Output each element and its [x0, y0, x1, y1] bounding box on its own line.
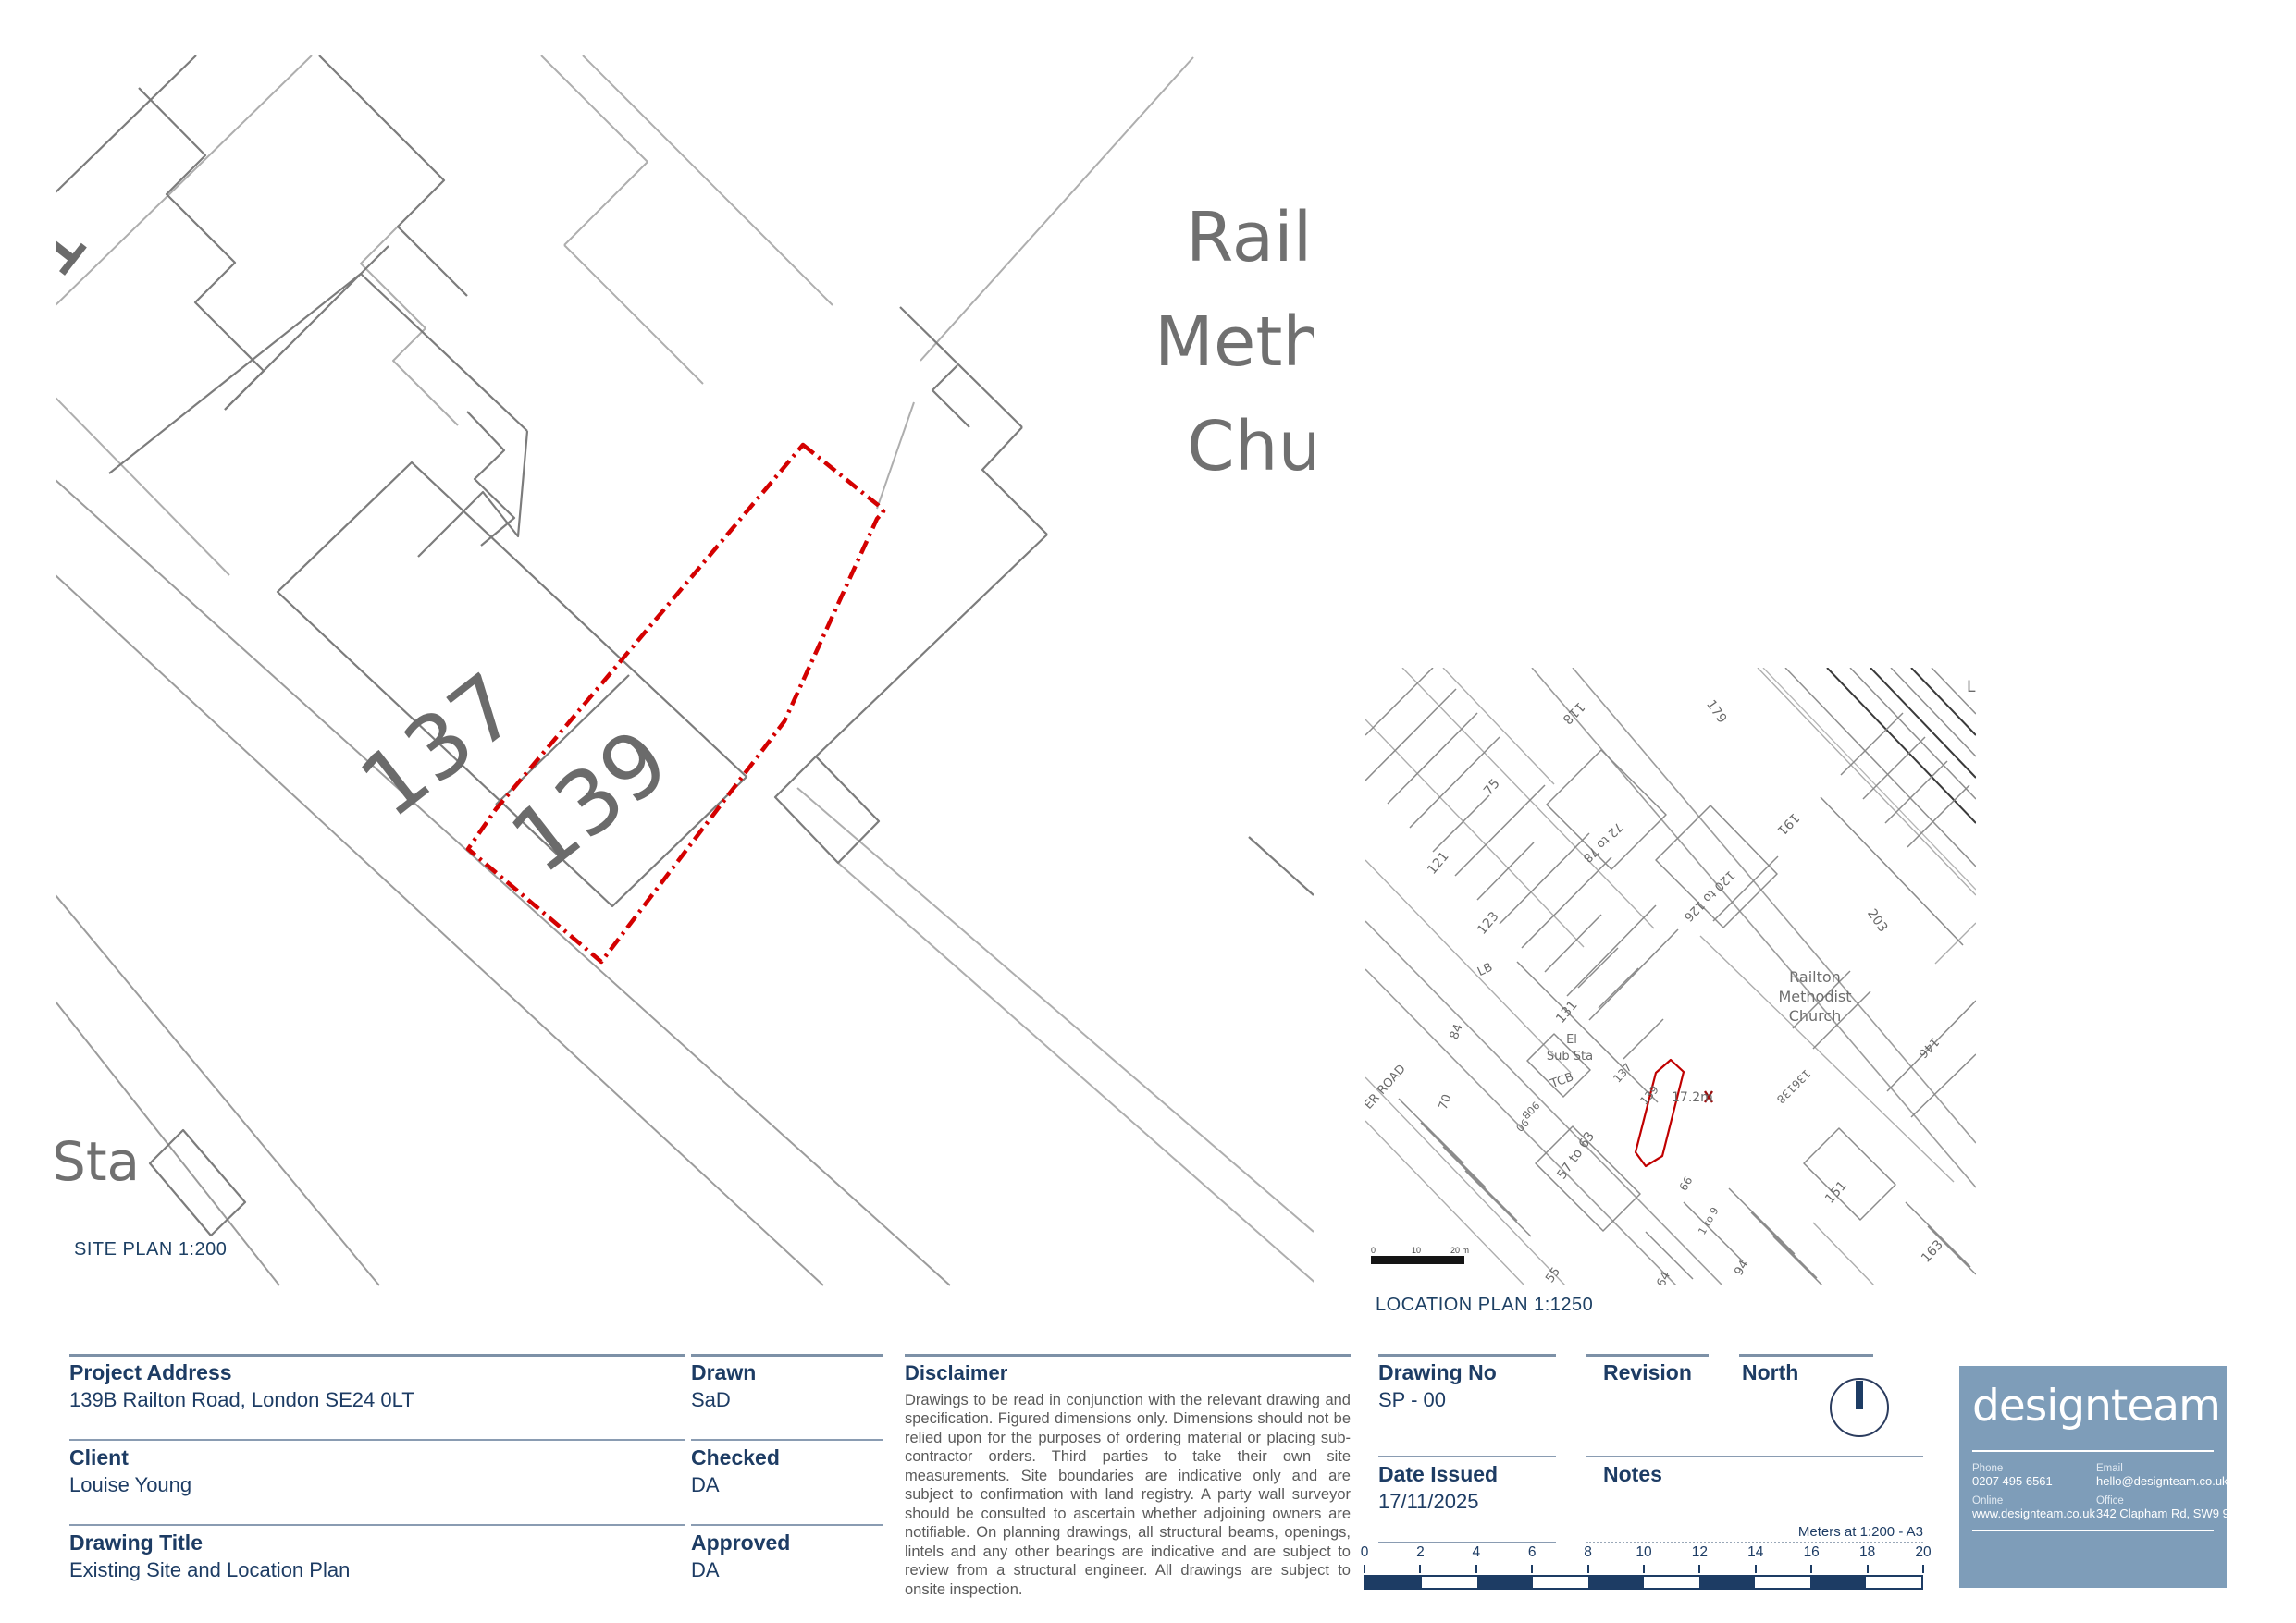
lp-label: 139 — [1637, 1083, 1661, 1107]
lp-label: 203 — [1864, 906, 1890, 935]
lp-label: 72 to 78 — [1580, 819, 1625, 865]
logo-divider-bottom — [1972, 1530, 2214, 1531]
lp-church-label-3: Church — [1789, 1007, 1842, 1025]
lp-label: El — [1566, 1033, 1577, 1047]
scale-num: 4 — [1472, 1544, 1480, 1561]
drawing-title-value: Existing Site and Location Plan — [69, 1558, 685, 1581]
scale-num: 0 — [1361, 1544, 1369, 1561]
scale-bar: Meters at 1:200 - A3 0 2 4 6 8 10 12 14 … — [1364, 1524, 1923, 1598]
site-label-church-2: Methodist — [1154, 302, 1332, 382]
lp-label: 55 — [1543, 1265, 1563, 1285]
logo-online: Online www.designteam.co.uk — [1972, 1495, 2087, 1520]
mini-scale-0: 0 — [1371, 1246, 1376, 1255]
location-parcels-light — [1365, 668, 1976, 1285]
client-value: Louise Young — [69, 1473, 685, 1496]
office-label: Office — [2096, 1495, 2243, 1506]
email-label: Email — [2096, 1463, 2243, 1474]
site-map-labels: 131 137 139 Railton Methodist Church Sta — [0, 192, 1332, 1193]
lp-church-label-2: Methodist — [1778, 988, 1851, 1005]
north-compass-needle — [1856, 1381, 1863, 1409]
location-plan-caption: LOCATION PLAN 1:1250 — [1376, 1295, 1593, 1316]
drawing-no-value: SP - 00 — [1378, 1388, 1556, 1411]
scale-num: 14 — [1747, 1544, 1763, 1561]
site-label-church-3: Church — [1187, 407, 1332, 486]
location-plan-map: 118 179 75 121 72 to 78 120 to 126 191 2… — [1365, 668, 1976, 1285]
disclaimer-label: Disclaimer — [905, 1361, 1351, 1385]
mini-scalebar-bar — [1371, 1256, 1464, 1264]
drawn-label: Drawn — [691, 1361, 883, 1384]
email-value[interactable]: hello@designteam.co.uk — [2096, 1474, 2243, 1488]
location-site-boundary-red — [1636, 1060, 1684, 1166]
checked-label: Checked — [691, 1446, 883, 1469]
site-label-131-partial: 131 — [0, 192, 107, 381]
date-issued-label: Date Issued — [1378, 1463, 1556, 1486]
scale-num: 6 — [1528, 1544, 1537, 1561]
logo-office: Office 342 Clapham Rd, SW9 9AJ — [2096, 1495, 2243, 1520]
date-issued-section: Date Issued 17/11/2025 — [1378, 1463, 1556, 1514]
lp-label: 84 — [1448, 1022, 1466, 1041]
site-plan-map: 131 137 139 Railton Methodist Church Sta — [0, 0, 1332, 1295]
checked-value: DA — [691, 1473, 883, 1496]
scale-num: 20 — [1915, 1544, 1931, 1561]
online-label: Online — [1972, 1495, 2087, 1506]
website-value[interactable]: www.designteam.co.uk — [1972, 1506, 2087, 1520]
client-label: Client — [69, 1446, 685, 1469]
drawing-title-section: Drawing Title Existing Site and Location… — [69, 1531, 685, 1582]
notes-section: Notes — [1603, 1463, 1788, 1490]
disclaimer-section: Disclaimer Drawings to be read in conjun… — [905, 1361, 1351, 1599]
location-plan-mini-scalebar: 0 10 20 m — [1371, 1248, 1473, 1266]
phone-label: Phone — [1972, 1463, 2087, 1474]
drawing-sheet: 131 137 139 Railton Methodist Church Sta… — [0, 0, 2296, 1623]
phone-value: 0207 495 6561 — [1972, 1474, 2087, 1488]
office-address-value: 342 Clapham Rd, SW9 9AJ — [2096, 1506, 2243, 1520]
lp-label: ER ROAD — [1365, 1063, 1409, 1113]
approved-section: Approved DA — [691, 1531, 883, 1582]
lp-label: 94 — [1732, 1258, 1751, 1278]
north-section: North — [1742, 1361, 1798, 1384]
mini-scale-10: 10 — [1412, 1246, 1421, 1255]
site-boundary-red — [468, 445, 883, 962]
location-roads — [1365, 668, 1976, 1285]
site-buildings-light — [56, 55, 1318, 1285]
drawing-title-label: Drawing Title — [69, 1531, 685, 1555]
north-compass-icon — [1830, 1378, 1889, 1437]
location-map-labels: 118 179 75 121 72 to 78 120 to 126 191 2… — [1365, 678, 1976, 1285]
lp-label: 123 — [1475, 909, 1501, 938]
project-address-label: Project Address — [69, 1361, 685, 1384]
notes-label: Notes — [1603, 1463, 1788, 1486]
lp-label: 179 — [1703, 697, 1729, 726]
lp-label: 121 — [1425, 849, 1451, 878]
drawing-no-section: Drawing No SP - 00 — [1378, 1361, 1556, 1412]
lp-label: 66 — [1677, 1174, 1696, 1193]
revision-label: Revision — [1603, 1361, 1742, 1384]
site-label-substation-partial: Sta — [52, 1130, 140, 1193]
approved-label: Approved — [691, 1531, 883, 1555]
site-roads — [56, 480, 950, 1285]
lp-label: 136138 — [1774, 1067, 1813, 1106]
lp-church-label-1: Railton — [1789, 968, 1841, 986]
site-plan-caption: SITE PLAN 1:200 — [74, 1239, 227, 1260]
scale-num: 16 — [1804, 1544, 1820, 1561]
lp-label: 118 — [1560, 699, 1587, 727]
railway-lines — [1763, 668, 1976, 890]
scale-num: 8 — [1584, 1544, 1592, 1561]
scale-num: 12 — [1692, 1544, 1708, 1561]
scale-num: 2 — [1416, 1544, 1425, 1561]
site-buildings-dark — [56, 55, 1314, 1236]
lp-label: L — [1967, 678, 1976, 696]
project-address-section: Project Address 139B Railton Road, Londo… — [69, 1361, 685, 1412]
location-buildings — [1365, 668, 1976, 1285]
lp-label: 146 — [1915, 1034, 1941, 1060]
lp-label: 191 — [1774, 810, 1802, 838]
drawn-section: Drawn SaD — [691, 1361, 883, 1412]
scale-bar-caption: Meters at 1:200 - A3 — [1798, 1524, 1923, 1540]
logo-email: Email hello@designteam.co.uk — [2096, 1463, 2243, 1488]
project-address-value: 139B Railton Road, London SE24 0LT — [69, 1388, 685, 1411]
scale-bar-segments — [1364, 1575, 1923, 1590]
north-label: North — [1742, 1361, 1798, 1384]
drawn-value: SaD — [691, 1388, 883, 1411]
client-section: Client Louise Young — [69, 1446, 685, 1497]
scale-num: 18 — [1859, 1544, 1875, 1561]
lp-label: Sub Sta — [1547, 1050, 1593, 1064]
approved-value: DA — [691, 1558, 883, 1581]
date-issued-value: 17/11/2025 — [1378, 1490, 1556, 1513]
revision-section: Revision — [1603, 1361, 1742, 1388]
lp-label: 163 — [1919, 1237, 1946, 1266]
disclaimer-text: Drawings to be read in conjunction with … — [905, 1391, 1351, 1599]
site-label-church-1: Railton — [1186, 198, 1332, 277]
lp-label: 70 — [1437, 1092, 1455, 1112]
lp-label: 75 — [1481, 776, 1503, 798]
drawing-no-label: Drawing No — [1378, 1361, 1556, 1384]
checked-section: Checked DA — [691, 1446, 883, 1497]
brand-wordmark: designteam — [1959, 1366, 2227, 1428]
designteam-logo-block: designteam Phone 0207 495 6561 Email hel… — [1959, 1366, 2227, 1588]
scale-num: 10 — [1636, 1544, 1651, 1561]
lp-label: 1 to 9 — [1696, 1205, 1721, 1236]
lp-label: 137 — [1611, 1061, 1635, 1085]
logo-phone: Phone 0207 495 6561 — [1972, 1463, 2087, 1488]
mini-scale-20: 20 m — [1450, 1246, 1469, 1255]
lp-label: 151 — [1822, 1178, 1850, 1207]
spot-height-label: 17.2m — [1672, 1090, 1713, 1105]
lp-label: 64 — [1655, 1270, 1674, 1285]
